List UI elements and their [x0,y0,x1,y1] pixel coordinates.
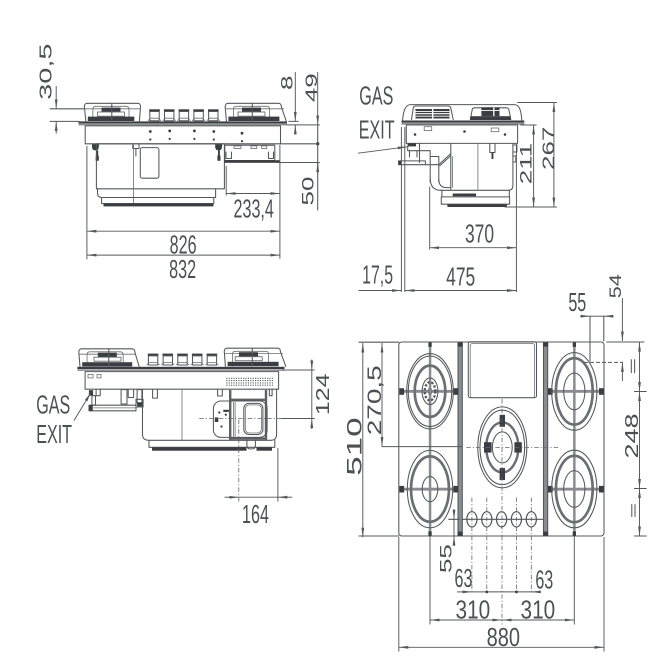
svg-text:63: 63 [455,563,473,593]
svg-text:17,5: 17,5 [362,261,393,290]
svg-text:EXIT: EXIT [36,419,72,449]
svg-text:30,5: 30,5 [36,43,56,99]
svg-text:49: 49 [302,73,321,102]
svg-text:832: 832 [169,254,196,284]
svg-text:248: 248 [621,413,642,458]
svg-text:233,4: 233,4 [234,193,274,223]
svg-text:GAS: GAS [359,81,393,111]
svg-text:270,5: 270,5 [364,365,386,435]
svg-text:55: 55 [436,544,455,573]
svg-text:63: 63 [535,564,553,594]
svg-text:164: 164 [242,499,269,529]
svg-text:475: 475 [446,262,475,291]
svg-text:50: 50 [298,177,317,206]
svg-text:GAS: GAS [36,389,70,419]
svg-text:880: 880 [487,622,520,651]
svg-text:310: 310 [456,595,491,624]
svg-text:211: 211 [516,143,535,184]
svg-text:55: 55 [568,287,586,317]
svg-text:8: 8 [277,76,296,90]
svg-text:124: 124 [312,373,333,415]
svg-text:EXIT: EXIT [359,114,395,144]
svg-text:54: 54 [607,274,626,299]
svg-text:267: 267 [539,127,558,170]
svg-text:310: 310 [521,595,556,624]
svg-text:370: 370 [465,219,494,248]
svg-text:510: 510 [343,417,367,475]
